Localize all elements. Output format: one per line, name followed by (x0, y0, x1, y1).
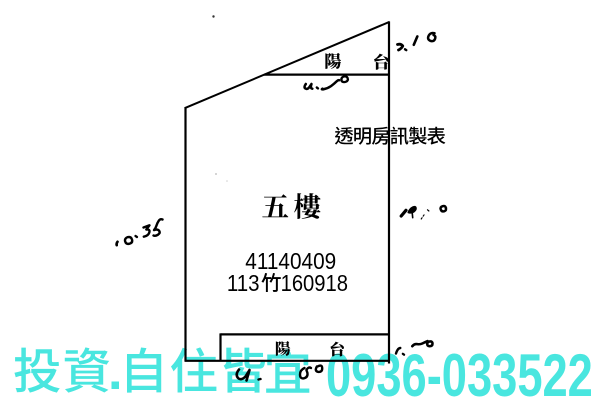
svg-text:0936-033522: 0936-033522 (326, 343, 593, 401)
svg-text:113: 113 (227, 270, 260, 297)
svg-text:160918: 160918 (281, 270, 348, 297)
